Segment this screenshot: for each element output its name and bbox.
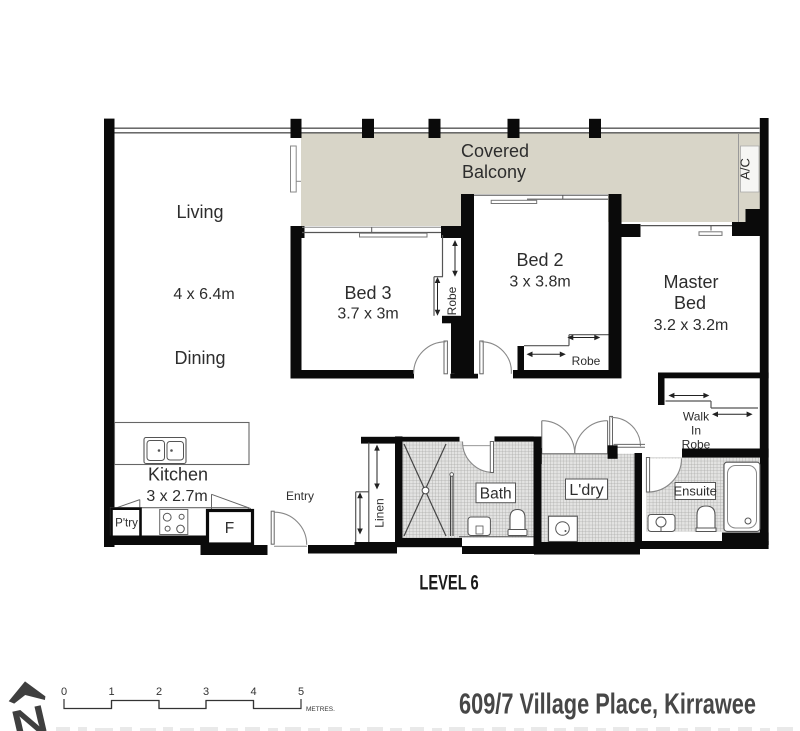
- svg-text:3.7 x 3m: 3.7 x 3m: [337, 306, 398, 323]
- svg-text:Walk: Walk: [683, 410, 710, 424]
- svg-text:3: 3: [203, 686, 209, 698]
- svg-text:Bed 3: Bed 3: [344, 283, 391, 303]
- svg-text:Robe: Robe: [445, 286, 459, 315]
- svg-text:2: 2: [156, 686, 162, 698]
- svg-text:Bed: Bed: [674, 293, 706, 313]
- svg-text:Covered: Covered: [461, 141, 529, 161]
- svg-text:Bath: Bath: [480, 486, 512, 503]
- svg-text:Balcony: Balcony: [462, 162, 526, 182]
- svg-text:Ensuite: Ensuite: [674, 484, 717, 499]
- svg-text:P'try: P'try: [115, 518, 138, 530]
- svg-text:3 x 3.8m: 3 x 3.8m: [509, 274, 570, 291]
- svg-text:609/7 Village Place, Kirrawee: 609/7 Village Place, Kirrawee: [459, 689, 756, 721]
- svg-text:Master: Master: [663, 272, 718, 292]
- svg-text:0: 0: [61, 686, 67, 698]
- svg-text:L'dry: L'dry: [569, 482, 603, 499]
- svg-text:Dining: Dining: [174, 348, 225, 368]
- svg-text:METRES.: METRES.: [306, 706, 335, 713]
- svg-text:A/C: A/C: [738, 158, 753, 180]
- svg-text:Kitchen: Kitchen: [148, 465, 208, 485]
- svg-text:F: F: [225, 520, 234, 537]
- svg-text:4: 4: [250, 686, 256, 698]
- svg-text:1: 1: [108, 686, 114, 698]
- svg-text:LEVEL 6: LEVEL 6: [419, 571, 478, 594]
- svg-text:4 x 6.4m: 4 x 6.4m: [173, 286, 234, 303]
- svg-text:5: 5: [298, 686, 304, 698]
- svg-text:Entry: Entry: [286, 489, 314, 503]
- svg-text:Living: Living: [176, 202, 223, 222]
- svg-text:3.2 x 3.2m: 3.2 x 3.2m: [654, 317, 729, 334]
- svg-text:Linen: Linen: [373, 498, 387, 527]
- svg-text:Robe: Robe: [572, 354, 601, 368]
- svg-text:Bed 2: Bed 2: [516, 250, 563, 270]
- svg-text:In: In: [691, 424, 701, 438]
- svg-text:3 x 2.7m: 3 x 2.7m: [146, 488, 207, 505]
